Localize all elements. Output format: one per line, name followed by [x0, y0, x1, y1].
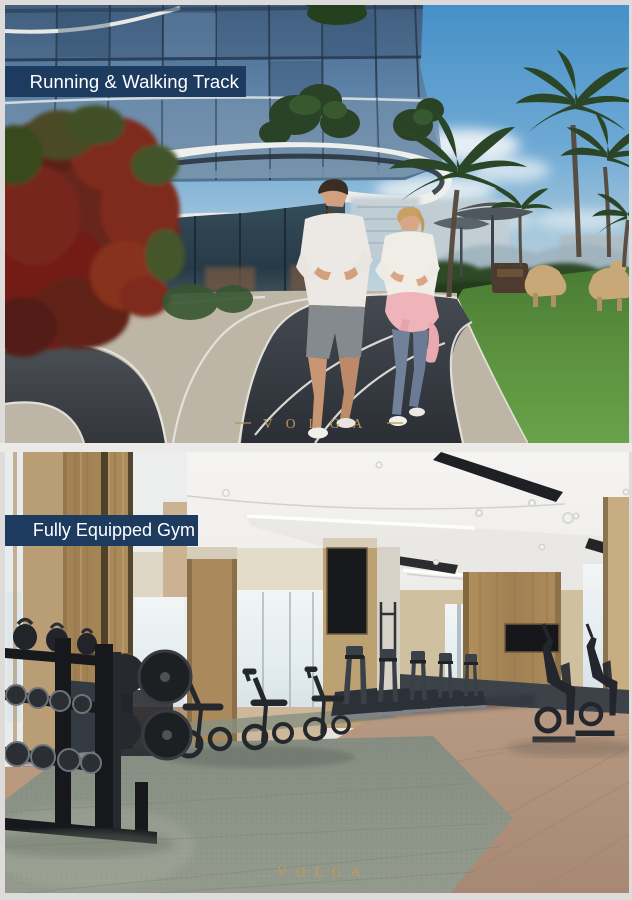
svg-text:VOLGA: VOLGA: [277, 864, 369, 879]
svg-text:VOLGA: VOLGA: [263, 416, 375, 431]
